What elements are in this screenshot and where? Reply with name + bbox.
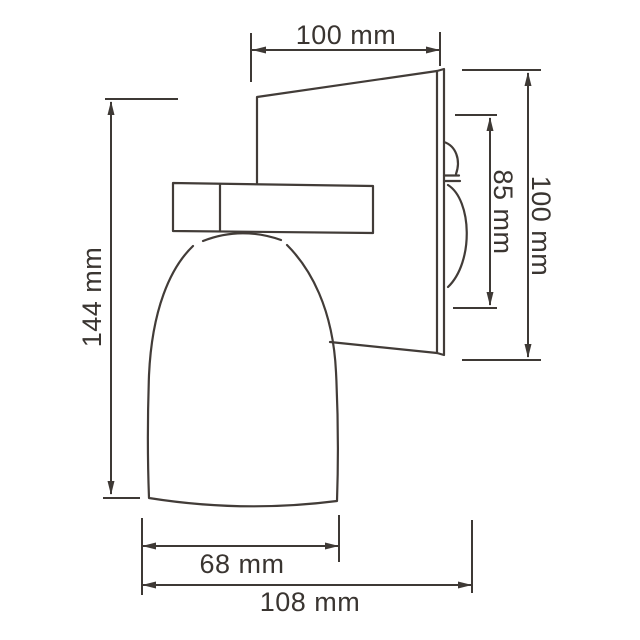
arrowhead-top [487, 117, 494, 131]
dimension-shade-width: 68 mm [142, 515, 339, 595]
arrowhead-top [525, 72, 532, 86]
arrowhead-bottom [108, 481, 115, 495]
wall-plate-outline [257, 71, 437, 353]
dim-label-shade-width: 68 mm [199, 549, 284, 579]
arrowhead-left [252, 47, 266, 54]
mounting-arm-outline [173, 183, 373, 233]
arrowhead-right [458, 582, 472, 589]
dim-label-backplate-inner: 85 mm [488, 169, 518, 254]
wall-lamp-dimension-diagram: 100 mm 144 mm 85 mm 100 mm [0, 0, 640, 640]
dim-label-overall-depth: 108 mm [260, 587, 361, 617]
shade-neck-arc [203, 233, 281, 241]
dim-label-top-width: 100 mm [296, 20, 397, 50]
technical-drawing-page: 100 mm 144 mm 85 mm 100 mm [0, 0, 640, 640]
dim-label-overall-height: 144 mm [77, 247, 107, 348]
arrowhead-left [142, 543, 156, 550]
dimension-top-width: 100 mm [251, 20, 440, 82]
dim-label-backplate-height: 100 mm [526, 176, 556, 277]
wall-bracket-lower-arc [448, 185, 467, 287]
wall-bracket-upper-arc [444, 142, 458, 174]
arrowhead-bottom [487, 292, 494, 306]
dimension-backplate-inner: 85 mm [453, 115, 518, 308]
arrowhead-right [426, 47, 440, 54]
lamp-shade-outline [148, 245, 338, 506]
dimension-overall-depth: 108 mm [142, 520, 472, 617]
arrowhead-bottom [525, 344, 532, 358]
arrowhead-top [108, 101, 115, 115]
arrowhead-left [142, 582, 156, 589]
lamp-figure [148, 69, 467, 506]
arrowhead-right [325, 543, 339, 550]
